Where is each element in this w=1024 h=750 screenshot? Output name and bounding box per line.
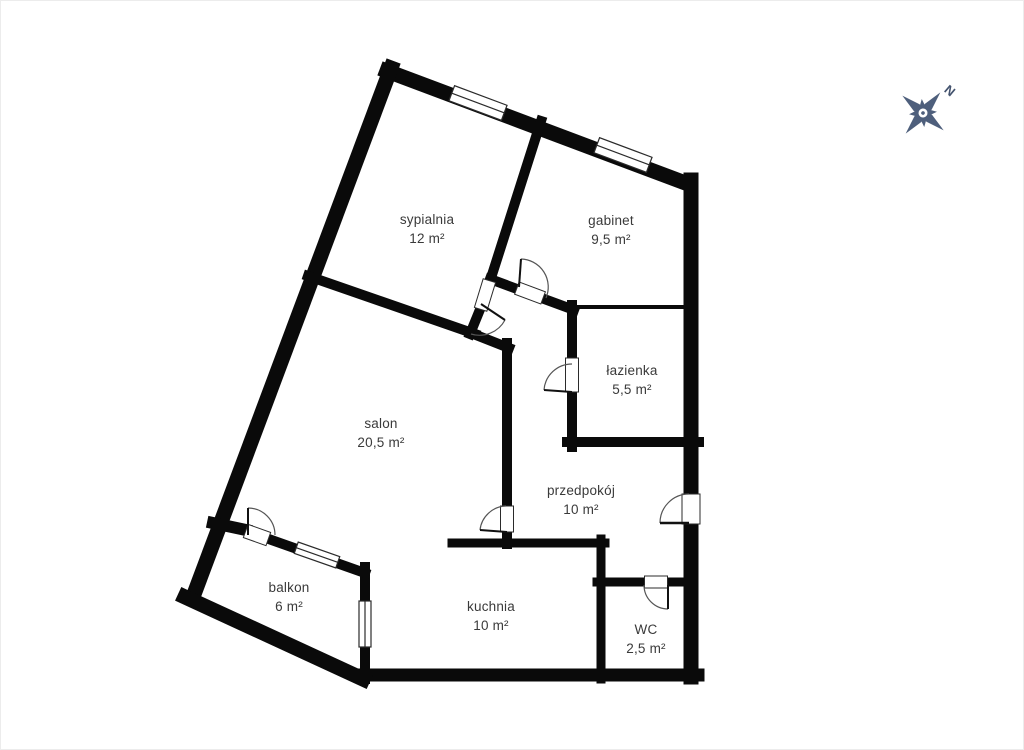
room-label-gabinet: gabinet 9,5 m²	[588, 211, 634, 249]
room-name: kuchnia	[467, 597, 515, 616]
door-opening-lazienka	[566, 358, 579, 392]
room-label-przedpokoj: przedpokój 10 m²	[547, 481, 615, 519]
door-wc	[644, 585, 668, 609]
window-salon-balkon	[294, 542, 339, 568]
room-name: salon	[357, 414, 404, 433]
room-name: balkon	[269, 578, 310, 597]
room-label-kuchnia: kuchnia 10 m²	[467, 597, 515, 635]
room-area: 5,5 m²	[606, 380, 657, 399]
door-opening-salon	[501, 506, 514, 532]
room-label-salon: salon 20,5 m²	[357, 414, 404, 452]
north-label: N	[941, 82, 958, 100]
room-label-balkon: balkon 6 m²	[269, 578, 310, 616]
room-area: 20,5 m²	[357, 433, 404, 452]
room-name: sypialnia	[400, 210, 454, 229]
room-area: 9,5 m²	[588, 230, 634, 249]
room-area: 10 m²	[467, 616, 515, 635]
floor-plan: N sypialnia 12 m² gabinet 9,5 m² łazienk…	[0, 0, 1024, 750]
room-label-wc: WC 2,5 m²	[626, 620, 665, 658]
window-sypialnia	[449, 86, 507, 121]
room-area: 2,5 m²	[626, 639, 665, 658]
room-label-sypialnia: sypialnia 12 m²	[400, 210, 454, 248]
room-name: WC	[626, 620, 665, 639]
window-kuchnia-balkon	[359, 601, 371, 647]
door-opening-wc	[645, 576, 668, 588]
room-area: 12 m²	[400, 229, 454, 248]
door-opening-entrance	[682, 494, 700, 524]
floor-plan-drawing: N	[1, 1, 1024, 750]
room-label-lazienka: łazienka 5,5 m²	[606, 361, 657, 399]
room-name: łazienka	[606, 361, 657, 380]
compass-icon: N	[885, 75, 961, 151]
room-name: gabinet	[588, 211, 634, 230]
room-area: 10 m²	[547, 500, 615, 519]
room-name: przedpokój	[547, 481, 615, 500]
room-area: 6 m²	[269, 597, 310, 616]
